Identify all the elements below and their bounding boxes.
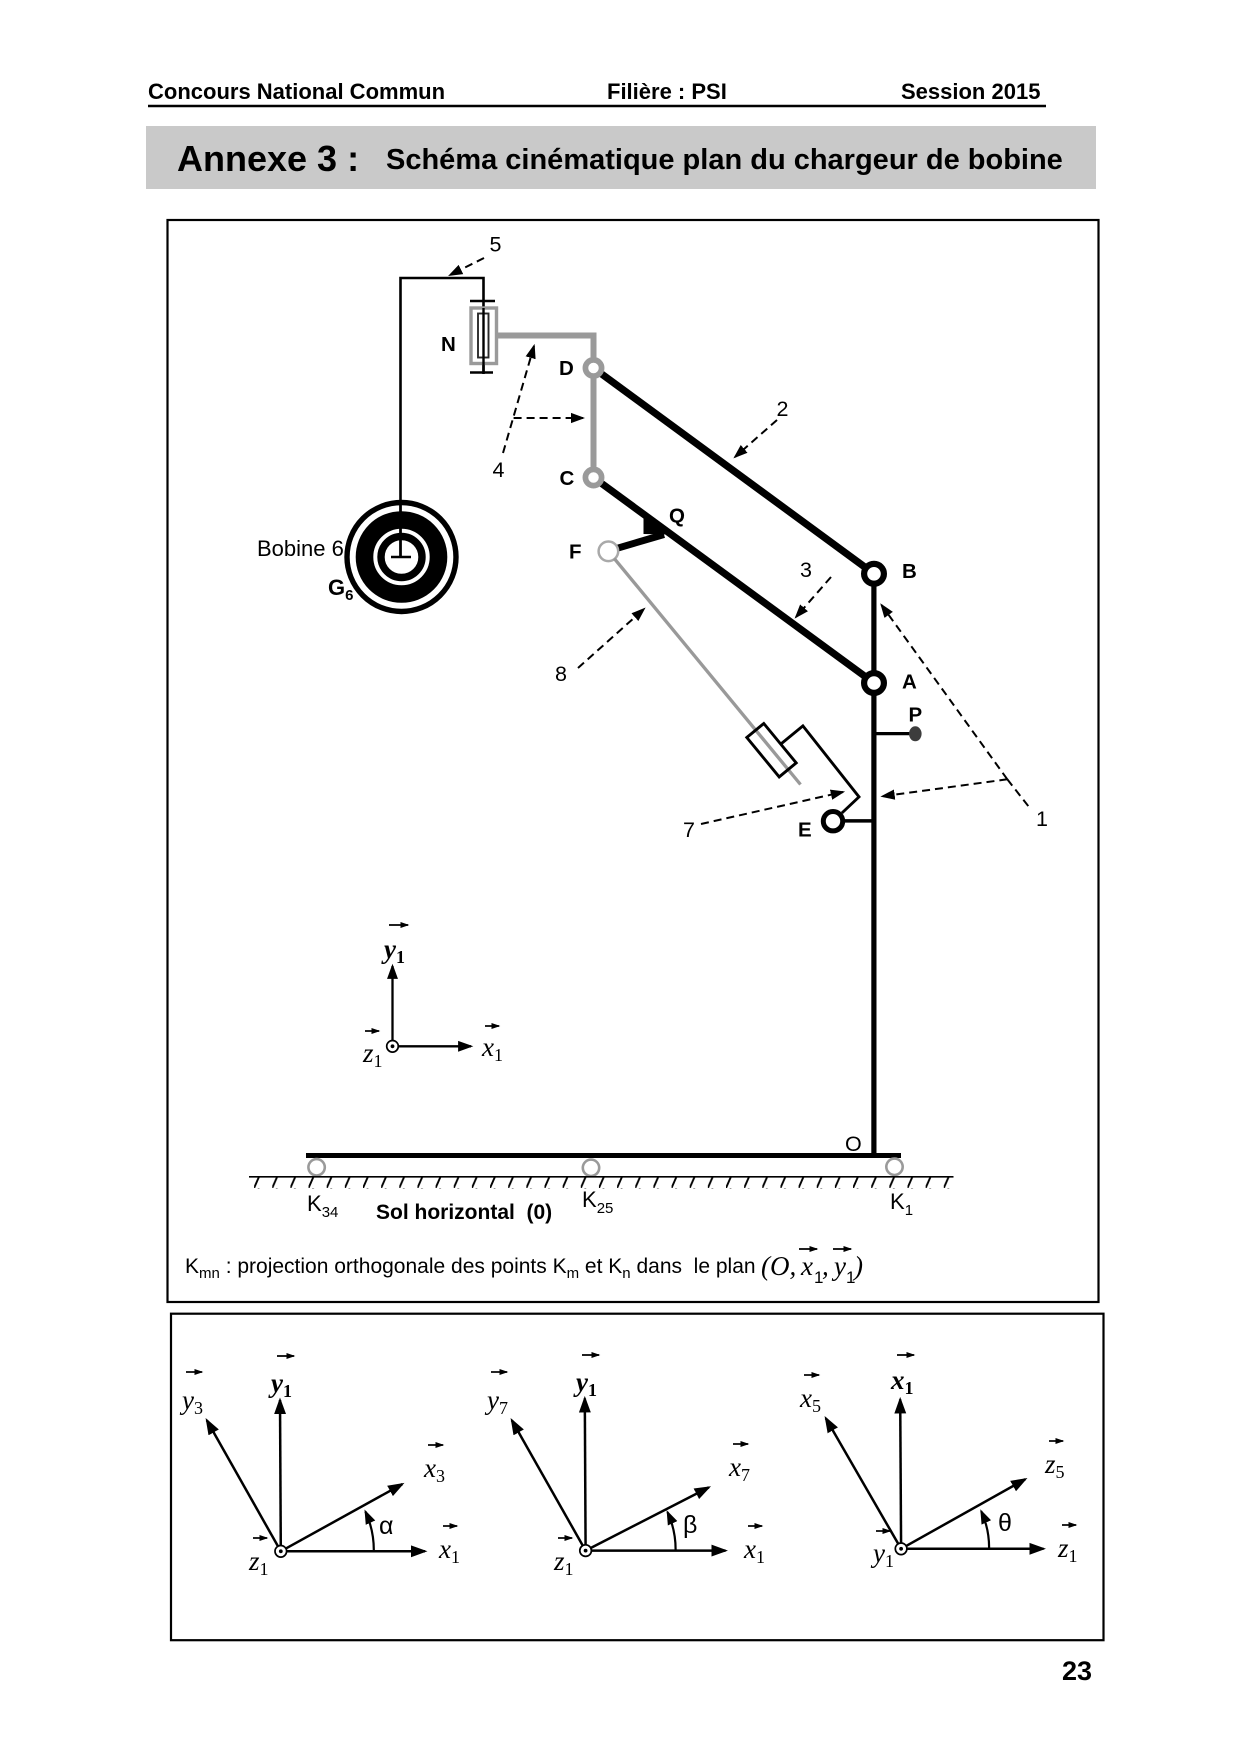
svg-text:P: P [909, 704, 923, 727]
svg-text:Bobine 6: Bobine 6 [257, 536, 344, 561]
svg-text:α: α [379, 1512, 393, 1540]
svg-text:8: 8 [555, 662, 567, 686]
svg-text:3: 3 [800, 558, 812, 582]
svg-text:): ) [852, 1251, 863, 1281]
svg-text:23: 23 [1062, 1656, 1092, 1686]
svg-text:7: 7 [683, 818, 695, 842]
svg-text:B: B [902, 560, 917, 583]
svg-text:θ: θ [998, 1509, 1012, 1537]
svg-text:4: 4 [493, 458, 505, 482]
svg-text:F: F [569, 541, 582, 564]
svg-text:1: 1 [1036, 807, 1048, 831]
svg-text:y: y [831, 1251, 846, 1281]
svg-text:E: E [798, 819, 812, 842]
svg-text:Kmn : projection orthogonale d: Kmn : projection orthogonale des points … [185, 1255, 756, 1282]
svg-text:5: 5 [490, 233, 502, 257]
svg-text:N: N [441, 333, 456, 356]
svg-text:x: x [800, 1251, 813, 1281]
svg-text:C: C [560, 467, 575, 490]
svg-text:A: A [902, 671, 917, 694]
svg-text:β: β [683, 1511, 697, 1539]
svg-text:Concours National Commun: Concours National Commun [148, 79, 445, 104]
svg-text:O: O [845, 1132, 862, 1156]
svg-text:2: 2 [777, 397, 789, 421]
svg-text:D: D [559, 357, 574, 380]
svg-text:,: , [822, 1251, 829, 1281]
svg-text:(O,: (O, [761, 1251, 796, 1281]
svg-text:Session 2015: Session 2015 [901, 79, 1040, 104]
svg-text:Q: Q [669, 505, 685, 528]
svg-text:Schéma cinématique plan du cha: Schéma cinématique plan du chargeur de b… [386, 144, 1063, 176]
svg-text:Filière : PSI: Filière : PSI [607, 79, 727, 104]
svg-text:Sol horizontal (0): Sol horizontal (0) [376, 1201, 552, 1224]
svg-text:Annexe 3 :: Annexe 3 : [177, 138, 359, 179]
